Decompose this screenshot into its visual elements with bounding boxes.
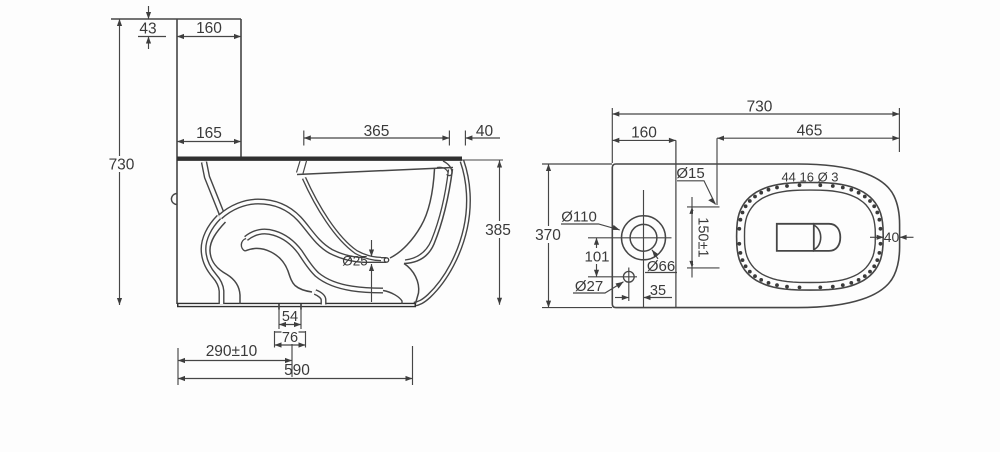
svg-text:385: 385 bbox=[485, 222, 511, 239]
svg-text:40: 40 bbox=[884, 229, 900, 245]
svg-text:730: 730 bbox=[747, 99, 773, 116]
svg-text:76: 76 bbox=[282, 330, 298, 346]
svg-text:101: 101 bbox=[584, 249, 609, 266]
svg-text:290±10: 290±10 bbox=[206, 343, 258, 360]
svg-text:730: 730 bbox=[109, 157, 135, 174]
svg-text:54: 54 bbox=[282, 309, 298, 325]
svg-text:465: 465 bbox=[797, 123, 823, 140]
svg-text:150±1: 150±1 bbox=[695, 217, 711, 257]
svg-text:44 16 Ø 3: 44 16 Ø 3 bbox=[781, 170, 838, 185]
svg-text:165: 165 bbox=[196, 125, 222, 142]
svg-text:43: 43 bbox=[139, 21, 156, 38]
svg-text:160: 160 bbox=[631, 125, 657, 142]
svg-text:Ø15: Ø15 bbox=[676, 165, 704, 182]
svg-text:40: 40 bbox=[476, 123, 494, 140]
svg-text:Ø25: Ø25 bbox=[342, 254, 368, 269]
svg-text:365: 365 bbox=[364, 123, 390, 140]
svg-text:590: 590 bbox=[284, 362, 310, 379]
svg-text:160: 160 bbox=[196, 20, 222, 37]
svg-text:370: 370 bbox=[535, 227, 561, 244]
svg-text:Ø110: Ø110 bbox=[561, 209, 597, 226]
svg-text:35: 35 bbox=[650, 283, 666, 299]
